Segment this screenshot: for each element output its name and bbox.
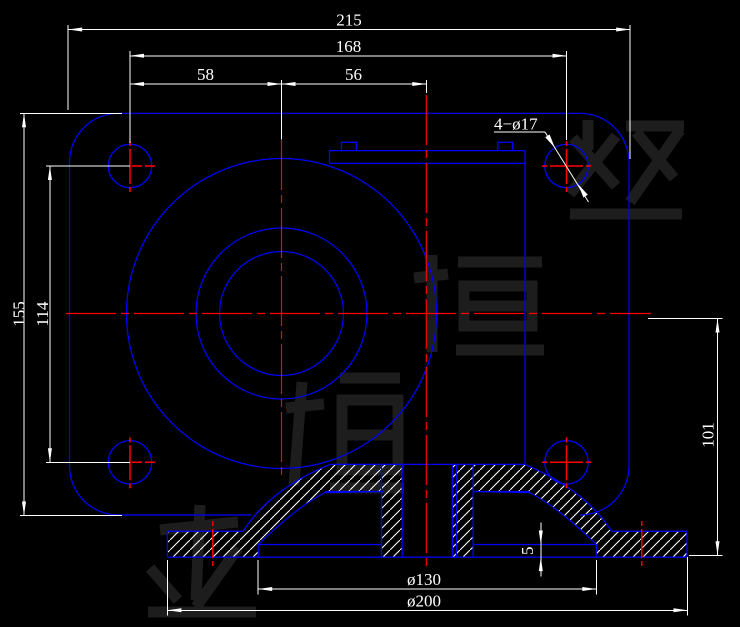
svg-text:101: 101 <box>699 422 718 448</box>
svg-text:114: 114 <box>33 301 52 326</box>
svg-text:4−ø17: 4−ø17 <box>494 115 538 134</box>
svg-text:215: 215 <box>336 11 362 30</box>
svg-text:168: 168 <box>336 37 362 56</box>
svg-text:155: 155 <box>9 301 28 327</box>
svg-text:56: 56 <box>345 65 362 84</box>
svg-text:58: 58 <box>197 65 214 84</box>
svg-text:5: 5 <box>518 547 537 556</box>
svg-text:ø200: ø200 <box>407 592 441 611</box>
svg-text:ø130: ø130 <box>407 570 441 589</box>
